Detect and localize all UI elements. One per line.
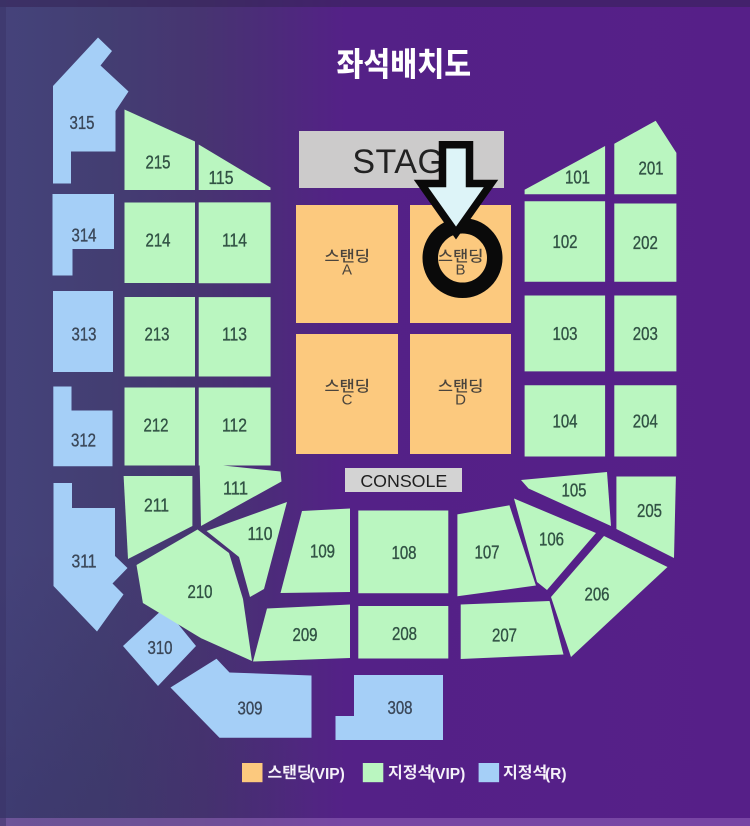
svg-text:209: 209 [293, 624, 318, 645]
svg-text:CONSOLE: CONSOLE [360, 471, 447, 491]
svg-text:101: 101 [565, 167, 590, 188]
svg-text:(R): (R) [545, 766, 567, 783]
svg-text:308: 308 [388, 697, 413, 718]
svg-text:112: 112 [222, 415, 247, 436]
svg-text:114: 114 [222, 230, 247, 251]
svg-text:310: 310 [148, 637, 173, 658]
svg-text:207: 207 [492, 625, 517, 646]
svg-text:104: 104 [553, 411, 578, 432]
svg-text:203: 203 [633, 323, 658, 344]
svg-text:208: 208 [392, 623, 417, 644]
svg-text:103: 103 [553, 323, 578, 344]
svg-text:205: 205 [637, 500, 662, 521]
svg-text:D: D [455, 392, 466, 409]
svg-text:206: 206 [585, 584, 610, 605]
svg-text:110: 110 [248, 523, 273, 544]
svg-text:(VIP): (VIP) [310, 766, 345, 783]
svg-text:111: 111 [223, 478, 248, 499]
svg-text:202: 202 [633, 232, 658, 253]
svg-text:108: 108 [392, 542, 417, 563]
svg-text:210: 210 [188, 581, 213, 602]
svg-text:201: 201 [639, 158, 664, 179]
svg-text:315: 315 [70, 112, 95, 133]
svg-text:204: 204 [633, 411, 658, 432]
svg-text:212: 212 [144, 415, 169, 436]
svg-text:113: 113 [222, 324, 247, 345]
svg-text:215: 215 [146, 152, 171, 173]
svg-text:C: C [342, 392, 353, 409]
svg-text:B: B [455, 262, 465, 279]
svg-text:312: 312 [71, 430, 96, 451]
svg-text:107: 107 [475, 542, 500, 563]
svg-text:115: 115 [209, 167, 234, 188]
svg-text:109: 109 [310, 541, 335, 562]
svg-text:(VIP): (VIP) [430, 766, 465, 783]
svg-text:106: 106 [539, 529, 564, 550]
svg-text:213: 213 [145, 324, 170, 345]
svg-text:311: 311 [72, 551, 97, 572]
svg-text:211: 211 [144, 495, 169, 516]
svg-text:214: 214 [146, 230, 171, 251]
svg-text:102: 102 [553, 231, 578, 252]
svg-text:105: 105 [562, 480, 587, 501]
svg-text:313: 313 [72, 324, 97, 345]
svg-text:309: 309 [238, 698, 263, 719]
svg-text:314: 314 [72, 225, 97, 246]
svg-text:A: A [342, 262, 352, 279]
